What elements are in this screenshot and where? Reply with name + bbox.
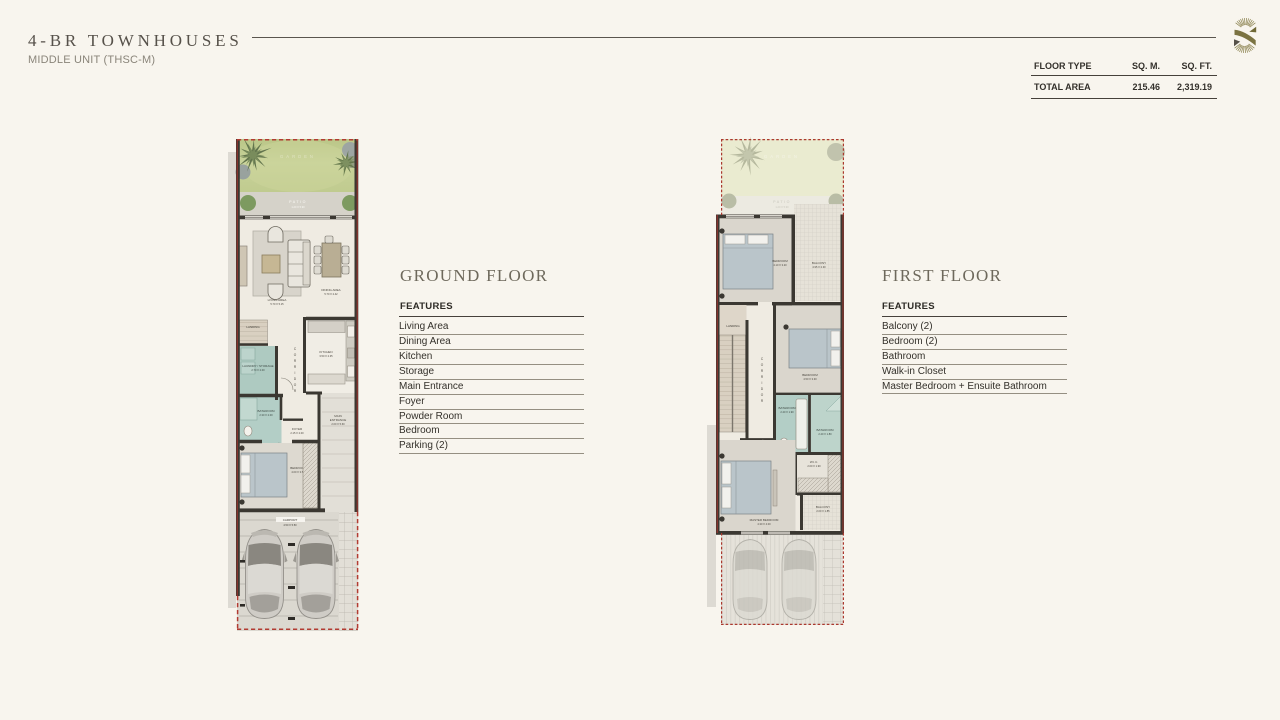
svg-text:CARPORT: CARPORT [283, 518, 298, 522]
svg-text:FOYER: FOYER [292, 427, 303, 431]
svg-text:4.50 X 5.50: 4.50 X 5.50 [283, 523, 297, 527]
svg-text:2.40 X 1.90: 2.40 X 1.90 [780, 410, 794, 414]
svg-text:LANDING: LANDING [246, 325, 260, 329]
svg-text:2.70 X 2.00: 2.70 X 2.00 [251, 368, 265, 372]
svg-text:5.70 X 5.15: 5.70 X 5.15 [270, 302, 284, 306]
svg-text:BEDROOM: BEDROOM [802, 373, 818, 377]
svg-text:5.70 X 2.42: 5.70 X 2.42 [324, 292, 338, 296]
svg-text:BATHROOM: BATHROOM [816, 428, 834, 432]
svg-text:LAUNDRY / STORAGE: LAUNDRY / STORAGE [242, 364, 273, 368]
svg-text:BEDROOM: BEDROOM [772, 259, 788, 263]
svg-text:I: I [295, 371, 296, 375]
svg-text:LIVING AREA: LIVING AREA [268, 298, 287, 302]
svg-text:3.50 X 2.35: 3.50 X 2.35 [319, 354, 333, 358]
svg-text:BATHROOM: BATHROOM [778, 406, 796, 410]
svg-text:PATIO: PATIO [289, 200, 307, 204]
svg-text:2.00 X 1.85: 2.00 X 1.85 [816, 509, 830, 513]
svg-text:BALCONY: BALCONY [816, 505, 830, 509]
svg-text:2.00 X 5.60: 2.00 X 5.60 [331, 422, 345, 426]
svg-text:2.00 X 1.90: 2.00 X 1.90 [807, 464, 821, 468]
svg-text:PATIO: PATIO [773, 200, 791, 204]
svg-text:BATHROOM: BATHROOM [257, 409, 275, 413]
svg-text:4.95 X 2.30: 4.95 X 2.30 [812, 265, 826, 269]
svg-text:4.30 X 4.00: 4.30 X 4.00 [757, 522, 771, 526]
svg-text:1.20 X 5.90: 1.20 X 5.90 [775, 205, 789, 209]
svg-text:4.10 X 3.20: 4.10 X 3.20 [773, 263, 787, 267]
svg-text:DINING AREA: DINING AREA [321, 288, 340, 292]
svg-text:W.I.C.: W.I.C. [810, 460, 818, 464]
svg-text:BALCONY: BALCONY [812, 261, 826, 265]
svg-text:2.40 X 1.80: 2.40 X 1.80 [818, 432, 832, 436]
svg-text:MASTER BEDROOM: MASTER BEDROOM [750, 518, 779, 522]
svg-text:KITCHEN: KITCHEN [319, 350, 332, 354]
svg-text:2.15 X 2.00: 2.15 X 2.00 [290, 431, 304, 435]
svg-text:GARDEN: GARDEN [280, 154, 316, 159]
svg-text:I: I [762, 381, 763, 385]
svg-text:1.20 X 5.90: 1.20 X 5.90 [291, 205, 305, 209]
svg-text:ENTRANCE: ENTRANCE [330, 418, 347, 422]
svg-text:GARDEN: GARDEN [764, 154, 800, 159]
svg-text:2.30 X 2.00: 2.30 X 2.00 [259, 413, 273, 417]
svg-text:LANDING: LANDING [726, 324, 740, 328]
svg-text:4.50 X 3.30: 4.50 X 3.30 [803, 377, 817, 381]
